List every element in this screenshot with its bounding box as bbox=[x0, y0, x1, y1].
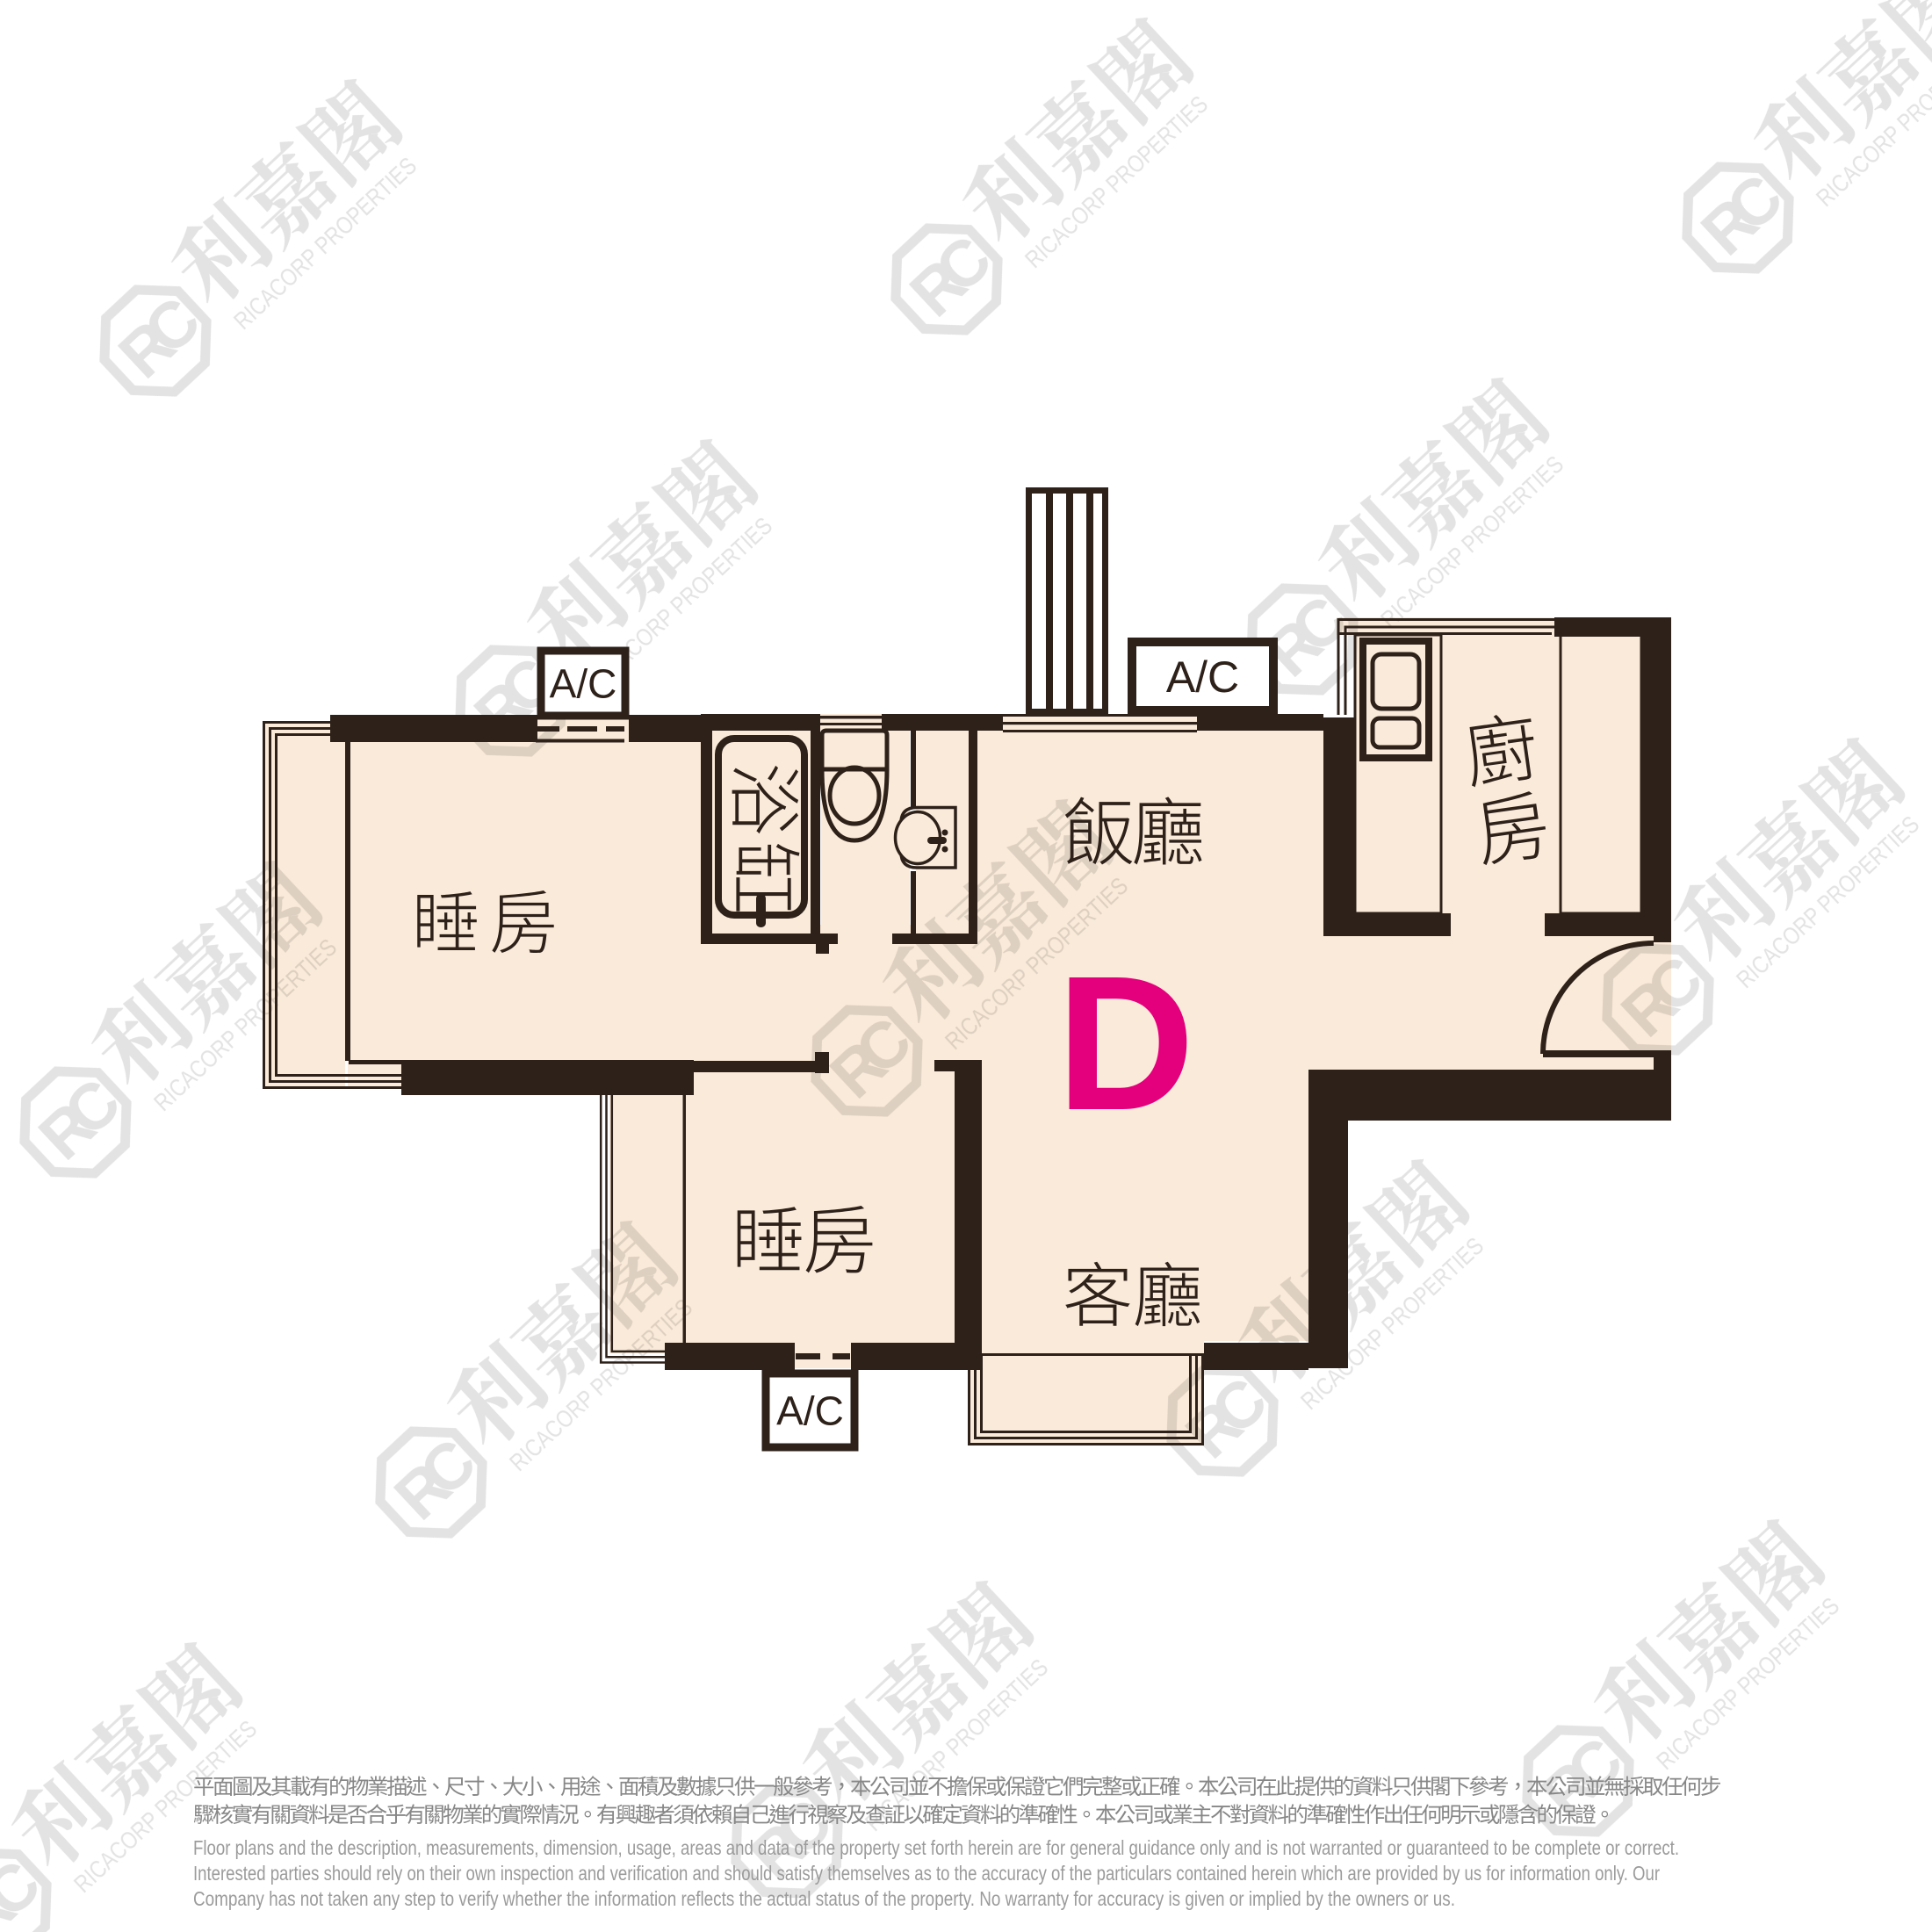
svg-text:Company has not taken any step: Company has not taken any step to verify… bbox=[193, 1887, 1455, 1910]
svg-text:A/C: A/C bbox=[1166, 652, 1239, 702]
svg-text:A/C: A/C bbox=[550, 661, 617, 707]
svg-text:A/C: A/C bbox=[776, 1388, 844, 1434]
svg-text:Floor plans and the descriptio: Floor plans and the description, measure… bbox=[193, 1836, 1679, 1859]
svg-text:D: D bbox=[1056, 937, 1194, 1150]
svg-text:Interested parties should rely: Interested parties should rely on their … bbox=[193, 1862, 1660, 1885]
